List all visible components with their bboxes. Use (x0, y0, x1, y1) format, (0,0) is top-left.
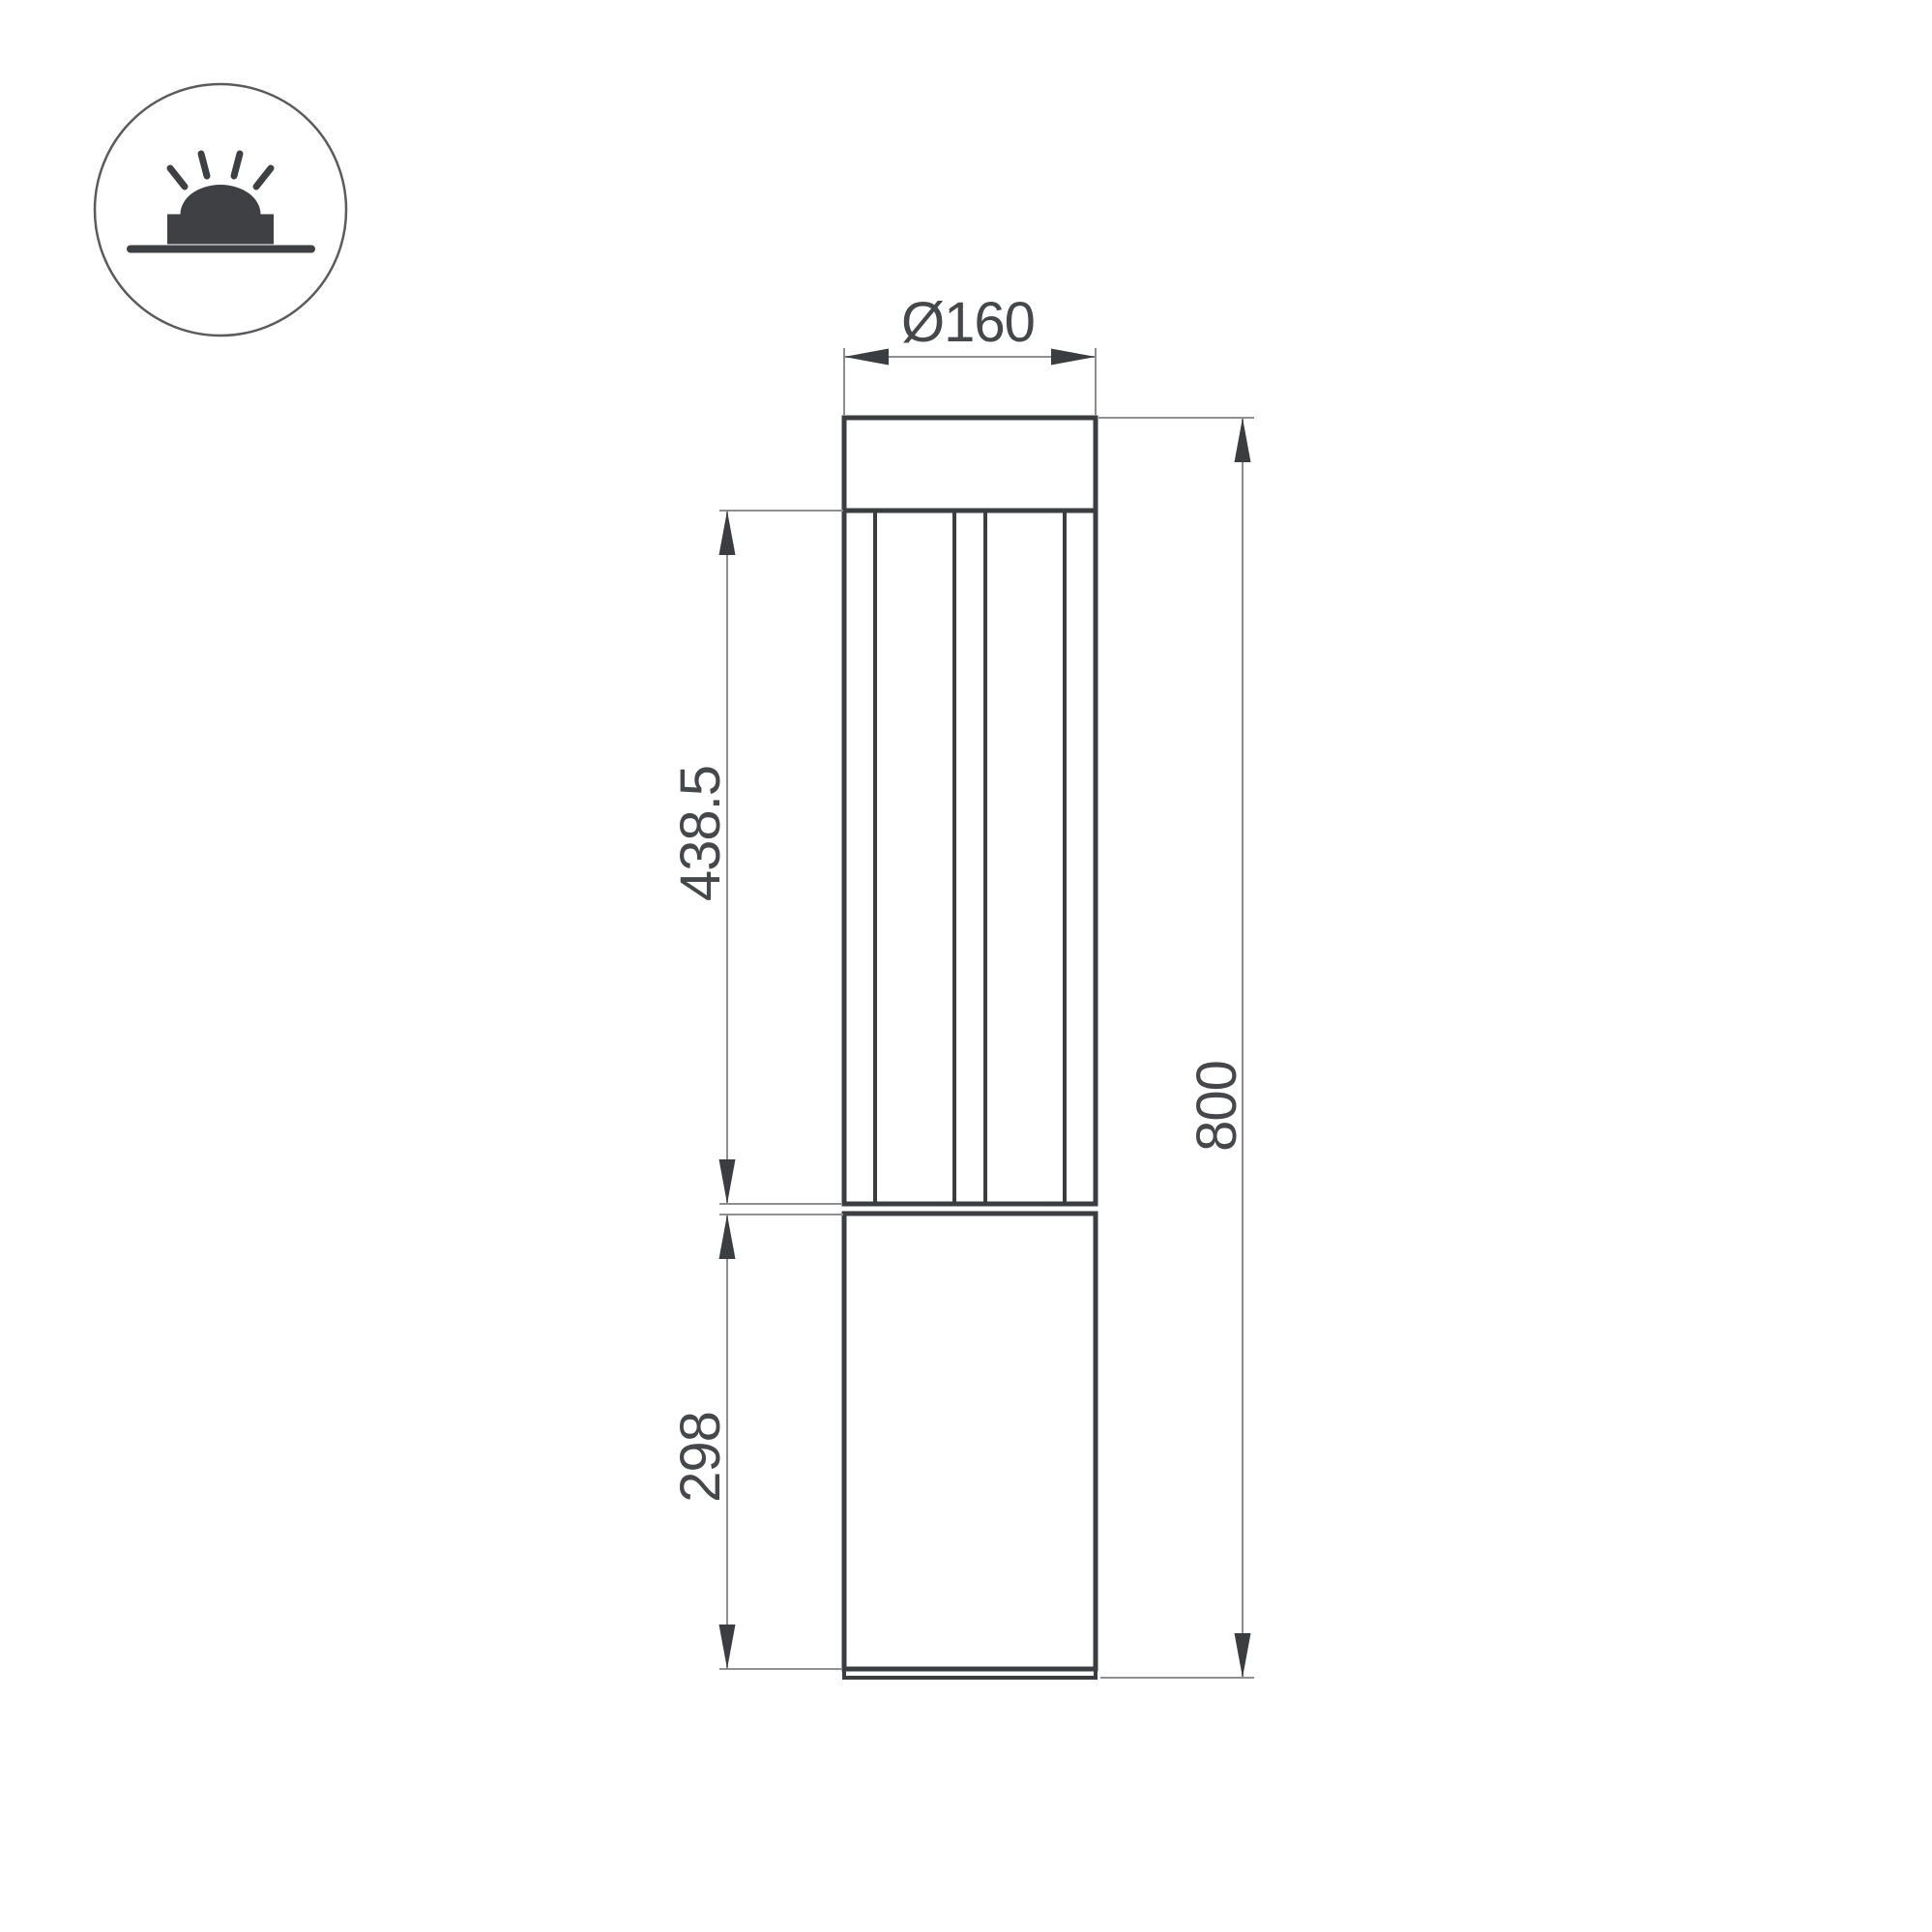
arrow-up-icon (719, 1215, 736, 1259)
dimension-label-body-height: 298 (669, 1412, 732, 1503)
body-section (844, 1214, 1096, 1669)
surface-mounted-light-badge (95, 84, 346, 336)
bollard-fixture-outline (844, 418, 1096, 1678)
dimension-label-overall-height: 800 (1186, 1061, 1248, 1152)
arrow-up-icon (1235, 418, 1251, 462)
top-cap (844, 418, 1096, 511)
dimension-label-lamp-height: 438.5 (669, 766, 732, 901)
mounting-base-icon (167, 215, 274, 245)
dimension-overall-height: 800 (1098, 418, 1254, 1678)
arrow-up-icon (719, 511, 736, 555)
bollard-dimension-drawing: Ø160 438.5 298 800 (0, 0, 1932, 1932)
arrow-down-icon (1235, 1633, 1251, 1678)
arrow-down-icon (719, 1159, 736, 1204)
lamp-section (844, 511, 1096, 1204)
dimension-lamp-section-height: 438.5 (669, 511, 843, 1204)
arrow-right-icon (1051, 349, 1096, 366)
arrow-left-icon (844, 349, 889, 366)
dimension-label-diameter: Ø160 (901, 291, 1035, 354)
base-plate (844, 1669, 1096, 1678)
dimension-body-section-height: 298 (669, 1215, 843, 1669)
drawing-canvas: Ø160 438.5 298 800 (0, 0, 1932, 1932)
lamp-louvers (875, 512, 1065, 1202)
arrow-down-icon (719, 1625, 736, 1669)
dimension-diameter: Ø160 (844, 291, 1096, 416)
